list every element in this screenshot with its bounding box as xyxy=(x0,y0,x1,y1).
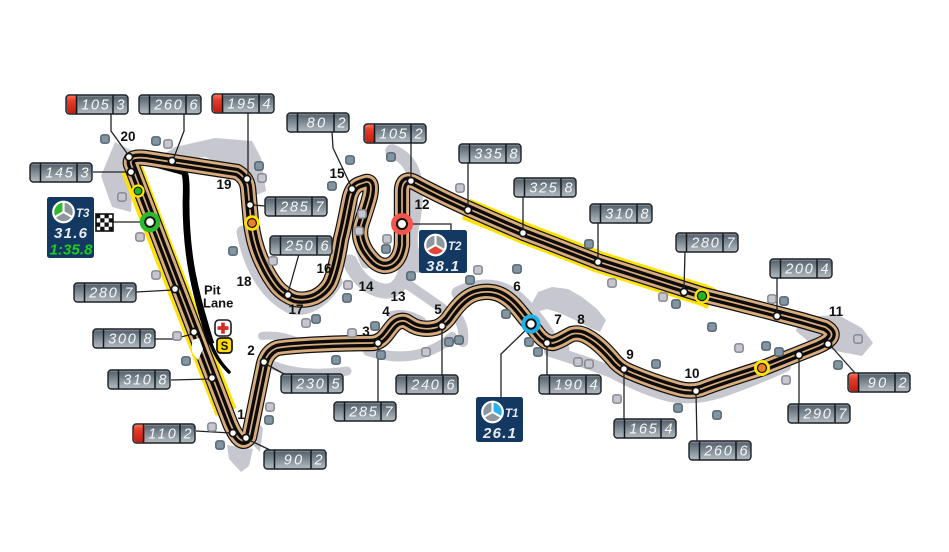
svg-text:14: 14 xyxy=(358,279,374,294)
svg-text:7: 7 xyxy=(838,407,847,423)
svg-text:17: 17 xyxy=(288,302,303,317)
svg-text:165: 165 xyxy=(629,422,658,438)
svg-text:260: 260 xyxy=(153,98,182,114)
svg-text:335: 335 xyxy=(474,147,503,163)
svg-text:3: 3 xyxy=(362,324,370,339)
svg-text:7: 7 xyxy=(726,236,735,252)
svg-text:5: 5 xyxy=(434,302,442,317)
svg-text:8: 8 xyxy=(577,312,585,327)
svg-text:190: 190 xyxy=(554,378,582,394)
svg-text:260: 260 xyxy=(703,444,732,460)
svg-text:9: 9 xyxy=(626,347,634,362)
svg-text:145: 145 xyxy=(45,166,74,182)
svg-text:7: 7 xyxy=(554,312,562,327)
svg-text:4: 4 xyxy=(382,304,390,319)
svg-text:6: 6 xyxy=(446,378,454,394)
svg-text:8: 8 xyxy=(158,373,166,389)
svg-text:110: 110 xyxy=(148,427,176,443)
svg-text:105: 105 xyxy=(81,98,110,114)
svg-text:12: 12 xyxy=(414,197,429,212)
svg-text:20: 20 xyxy=(120,129,135,144)
svg-text:280: 280 xyxy=(690,236,719,252)
svg-text:325: 325 xyxy=(529,181,558,197)
svg-text:T3: T3 xyxy=(76,208,90,220)
svg-text:8: 8 xyxy=(564,181,572,197)
svg-text:2: 2 xyxy=(413,127,422,143)
svg-text:15: 15 xyxy=(329,166,345,181)
svg-text:8: 8 xyxy=(509,147,517,163)
svg-text:1:35.8: 1:35.8 xyxy=(50,242,94,259)
svg-text:6: 6 xyxy=(320,239,328,255)
svg-text:5: 5 xyxy=(331,377,340,393)
svg-text:7: 7 xyxy=(315,200,324,216)
svg-text:250: 250 xyxy=(284,239,313,255)
svg-text:7: 7 xyxy=(124,286,133,302)
svg-text:2: 2 xyxy=(247,343,255,358)
svg-text:195: 195 xyxy=(227,97,256,113)
svg-text:285: 285 xyxy=(279,200,309,216)
svg-text:Lane: Lane xyxy=(203,296,233,311)
svg-text:7: 7 xyxy=(384,405,393,421)
svg-text:290: 290 xyxy=(802,407,831,423)
svg-text:240: 240 xyxy=(410,378,439,394)
svg-text:300: 300 xyxy=(108,332,136,348)
svg-text:31.6: 31.6 xyxy=(54,225,88,242)
svg-text:2: 2 xyxy=(336,116,345,132)
svg-text:8: 8 xyxy=(143,332,151,348)
svg-text:T1: T1 xyxy=(505,408,518,420)
svg-text:3: 3 xyxy=(80,166,88,182)
svg-text:2: 2 xyxy=(897,376,906,392)
svg-text:310: 310 xyxy=(123,373,151,389)
svg-text:13: 13 xyxy=(390,289,406,304)
svg-text:S: S xyxy=(221,341,229,353)
svg-text:200: 200 xyxy=(784,262,813,278)
svg-text:4: 4 xyxy=(262,97,270,113)
svg-text:4: 4 xyxy=(664,422,672,438)
svg-text:10: 10 xyxy=(684,366,699,381)
svg-text:16: 16 xyxy=(316,261,332,276)
svg-text:280: 280 xyxy=(88,286,117,302)
svg-text:310: 310 xyxy=(605,207,633,223)
svg-text:1: 1 xyxy=(237,407,245,422)
svg-text:6: 6 xyxy=(739,444,747,460)
svg-text:T2: T2 xyxy=(448,241,462,253)
svg-text:2: 2 xyxy=(313,453,322,469)
svg-text:18: 18 xyxy=(236,274,252,289)
svg-text:26.1: 26.1 xyxy=(482,425,516,442)
svg-text:6: 6 xyxy=(189,98,197,114)
svg-text:3: 3 xyxy=(116,98,124,114)
svg-text:4: 4 xyxy=(820,262,828,278)
svg-text:38.1: 38.1 xyxy=(426,258,459,275)
svg-text:19: 19 xyxy=(216,177,231,192)
svg-text:230: 230 xyxy=(295,377,324,393)
svg-text:11: 11 xyxy=(829,304,844,319)
svg-text:6: 6 xyxy=(513,279,521,294)
svg-text:285: 285 xyxy=(348,405,378,421)
svg-text:2: 2 xyxy=(182,427,191,443)
svg-text:4: 4 xyxy=(589,378,597,394)
svg-text:105: 105 xyxy=(379,127,408,143)
svg-text:8: 8 xyxy=(640,207,648,223)
